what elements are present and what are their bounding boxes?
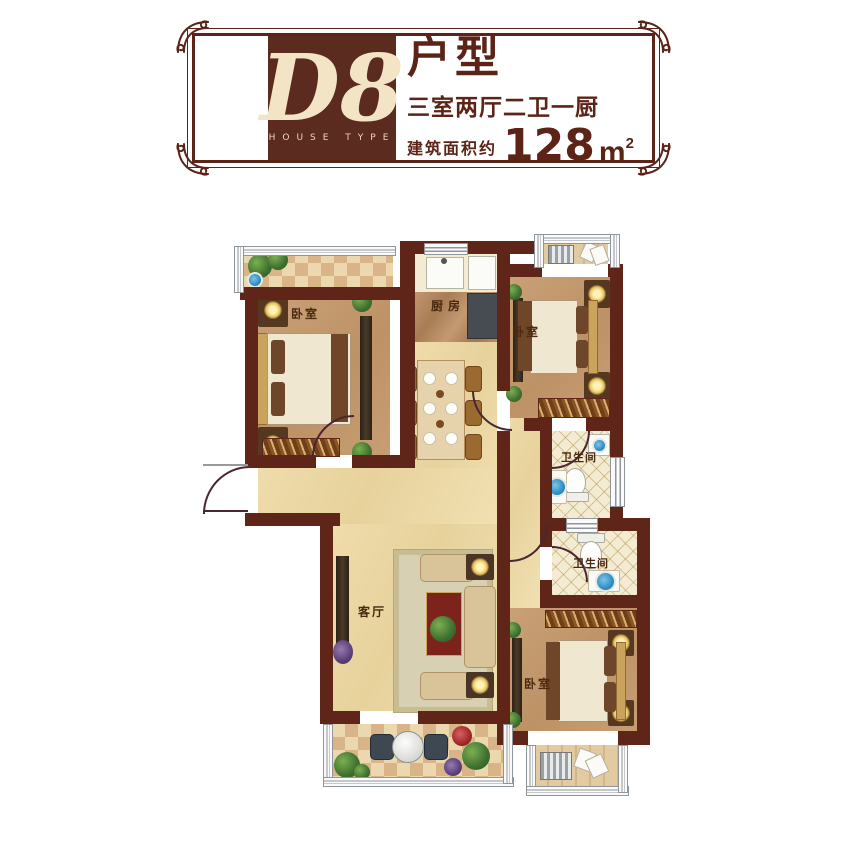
wall (352, 455, 403, 468)
entry-door-arc (203, 466, 250, 514)
window (538, 234, 614, 244)
pillow (576, 340, 588, 368)
window (424, 243, 468, 255)
balcony-chair (424, 734, 448, 760)
dining-chair (465, 434, 482, 460)
house-type-en: HOUSE TYPE (269, 133, 396, 143)
window (234, 246, 244, 293)
corner-flourish-icon (636, 19, 672, 55)
pot (247, 272, 263, 288)
bedroom-top-right-label: 卧室 (502, 326, 550, 339)
unit-code-block: D8 HOUSE TYPE (268, 36, 396, 160)
window (526, 786, 629, 796)
sofa (464, 586, 496, 668)
bathroom-sink (595, 571, 616, 592)
area-number: 128 (503, 126, 595, 166)
wall (540, 431, 552, 518)
pillow (271, 340, 285, 374)
bed-headboard (616, 642, 626, 720)
side-table (466, 554, 494, 580)
bed-headboard (588, 300, 598, 374)
tv-cabinet (360, 316, 372, 440)
header-text-column: 户型 三室两厅二卫一厨 建筑面积约 128 m 2 (407, 34, 657, 162)
wardrobe (538, 398, 610, 418)
area-exponent: 2 (626, 135, 634, 152)
tv-cabinet (336, 556, 349, 644)
plate (445, 402, 458, 415)
area-line: 建筑面积约 128 m 2 (407, 126, 657, 166)
wall (610, 431, 623, 459)
faucet-icon (441, 258, 447, 264)
window (618, 745, 628, 793)
plate (423, 402, 436, 415)
window (323, 724, 333, 784)
floorplan-page: D8 HOUSE TYPE 户型 三室两厅二卫一厨 建筑面积约 128 m 2 (0, 0, 854, 841)
plate (445, 432, 458, 445)
wall (403, 241, 536, 254)
pillow (604, 646, 616, 676)
wall (524, 418, 552, 431)
window (323, 777, 514, 787)
window (503, 724, 513, 784)
wall (586, 418, 610, 431)
kitchen-label: 厨房 (416, 300, 480, 313)
bed (558, 640, 608, 722)
layout-description: 三室两厅二卫一厨 (407, 88, 657, 122)
flower-plant (444, 758, 462, 776)
bathroom-upper-label: 卫生间 (548, 452, 610, 464)
wall (400, 241, 415, 468)
lamp-icon (588, 377, 606, 395)
unit-code: D8 (260, 47, 404, 130)
bathroom-lower-label: 卫生间 (560, 558, 622, 570)
wall (637, 518, 650, 745)
radiator (548, 245, 574, 264)
bedroom-bottom-right-door-arc (510, 524, 548, 562)
lamp-icon (471, 558, 489, 576)
window (610, 457, 625, 507)
plate (423, 432, 436, 445)
window (566, 518, 598, 533)
pillow (604, 682, 616, 712)
wall (618, 731, 650, 745)
side-table (466, 672, 494, 698)
dish (436, 420, 444, 428)
wardrobe (545, 610, 637, 628)
wall (418, 711, 510, 724)
plate (423, 372, 436, 385)
kitchen-cabinet (468, 256, 496, 290)
wall (497, 431, 510, 745)
pillow (576, 306, 588, 334)
plate (445, 372, 458, 385)
bedroom-bottom-right-label: 卧室 (514, 678, 562, 691)
flower-plant (333, 640, 353, 664)
type-label: 户型 (407, 34, 657, 82)
wall (610, 264, 623, 431)
dining-chair (465, 366, 482, 392)
area-unit: m (599, 139, 626, 166)
balcony-chair (370, 734, 394, 760)
corner-flourish-icon (175, 19, 211, 55)
plant (430, 616, 456, 642)
wall (320, 513, 333, 724)
wall (250, 455, 316, 468)
header-panel: D8 HOUSE TYPE 户型 三室两厅二卫一厨 建筑面积约 128 m 2 (187, 28, 660, 168)
entry-door-leaf (203, 510, 248, 512)
nightstand (584, 372, 610, 400)
dish (436, 390, 444, 398)
corner-flourish-icon (175, 141, 211, 177)
bed-runner (331, 334, 348, 422)
window (610, 234, 620, 268)
entry-threshold (203, 464, 248, 466)
corner-flourish-icon (636, 141, 672, 177)
radiator (540, 752, 572, 780)
wall (245, 287, 258, 466)
window (534, 234, 544, 268)
wall (240, 287, 405, 300)
living-room-label: 客厅 (348, 606, 396, 619)
window (236, 246, 396, 256)
balcony-table (392, 731, 424, 763)
plant (462, 742, 490, 770)
pillow (271, 382, 285, 416)
wall (320, 711, 360, 724)
wall (540, 595, 637, 608)
area-prefix: 建筑面积约 (407, 135, 497, 166)
lamp-icon (471, 676, 489, 694)
bedroom-top-left-label: 卧室 (275, 308, 335, 321)
